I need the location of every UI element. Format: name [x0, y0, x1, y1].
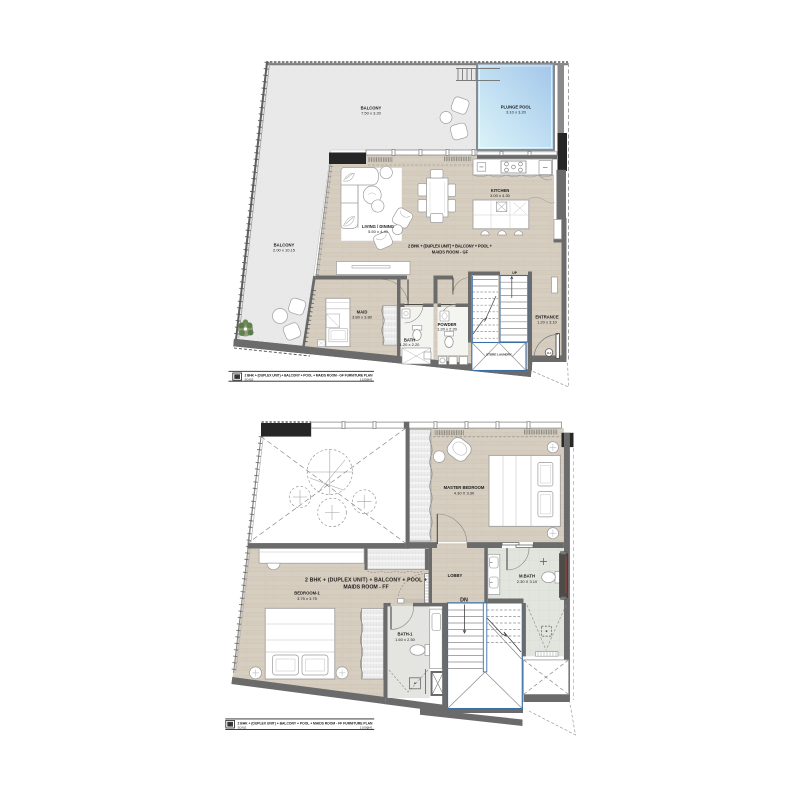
svg-text:3.00 x 4.30: 3.00 x 4.30 — [490, 193, 511, 198]
svg-text:1.20 x 2.20: 1.20 x 2.20 — [400, 342, 421, 347]
svg-text:LOBBY: LOBBY — [448, 573, 463, 578]
svg-text:3.80 x 3.80: 3.80 x 3.80 — [352, 314, 373, 319]
svg-text:M.BATH: M.BATH — [519, 574, 535, 579]
svg-text:4.30 X 3.30: 4.30 X 3.30 — [454, 491, 475, 496]
svg-text:1:100@A1: 1:100@A1 — [360, 377, 373, 381]
svg-text:F: F — [229, 723, 231, 727]
svg-text:DN: DN — [460, 598, 468, 604]
svg-text:3.10 x 3.20: 3.10 x 3.20 — [506, 110, 527, 115]
svg-text:2 BHK + (DUPLEX UNIT) + BALCON: 2 BHK + (DUPLEX UNIT) + BALCONY + POOL + — [408, 244, 493, 249]
svg-text:1.60 x 2.50: 1.60 x 2.50 — [395, 637, 416, 642]
svg-text:MAIDS ROOM - GF: MAIDS ROOM - GF — [432, 250, 469, 255]
svg-text:F: F — [236, 375, 238, 379]
svg-text:SCALE: SCALE — [245, 377, 254, 381]
svg-text:7.50 x 3.20: 7.50 x 3.20 — [361, 110, 382, 115]
svg-text:BATH-1: BATH-1 — [397, 632, 413, 637]
svg-text:3.75 x 3.75: 3.75 x 3.75 — [297, 596, 318, 601]
svg-text:2 BHK + (DUPLEX UNIT) + BALCON: 2 BHK + (DUPLEX UNIT) + BALCONY + POOL +… — [245, 373, 374, 377]
svg-text:114: 114 — [547, 351, 552, 355]
svg-text:1.20 x 3.10: 1.20 x 3.10 — [537, 319, 558, 324]
svg-text:5.50 x 4.40: 5.50 x 4.40 — [368, 229, 389, 234]
svg-text:1:100@A1: 1:100@A1 — [360, 726, 373, 730]
svg-text:1.20 x 2.20: 1.20 x 2.20 — [437, 327, 458, 332]
svg-text:BEDROOM-1: BEDROOM-1 — [294, 591, 320, 596]
svg-text:STORE LAUNDRY: STORE LAUNDRY — [486, 353, 512, 357]
svg-text:MAIDS ROOM - FF: MAIDS ROOM - FF — [343, 585, 388, 591]
svg-text:2 BHK + (DUPLEX UNIT) + BALCON: 2 BHK + (DUPLEX UNIT) + BALCONY + POOL +… — [238, 721, 374, 725]
svg-text:UP: UP — [512, 271, 517, 275]
svg-text:2.00 x 10.15: 2.00 x 10.15 — [273, 247, 296, 252]
svg-text:2.30 X 3.10: 2.30 X 3.10 — [517, 579, 538, 584]
svg-text:MASTER BEDROOM: MASTER BEDROOM — [444, 485, 485, 490]
svg-text:SCALE: SCALE — [238, 726, 247, 730]
svg-text:2 BHK + (DUPLEX UNIT) + BALCON: 2 BHK + (DUPLEX UNIT) + BALCONY + POOL + — [305, 578, 427, 584]
